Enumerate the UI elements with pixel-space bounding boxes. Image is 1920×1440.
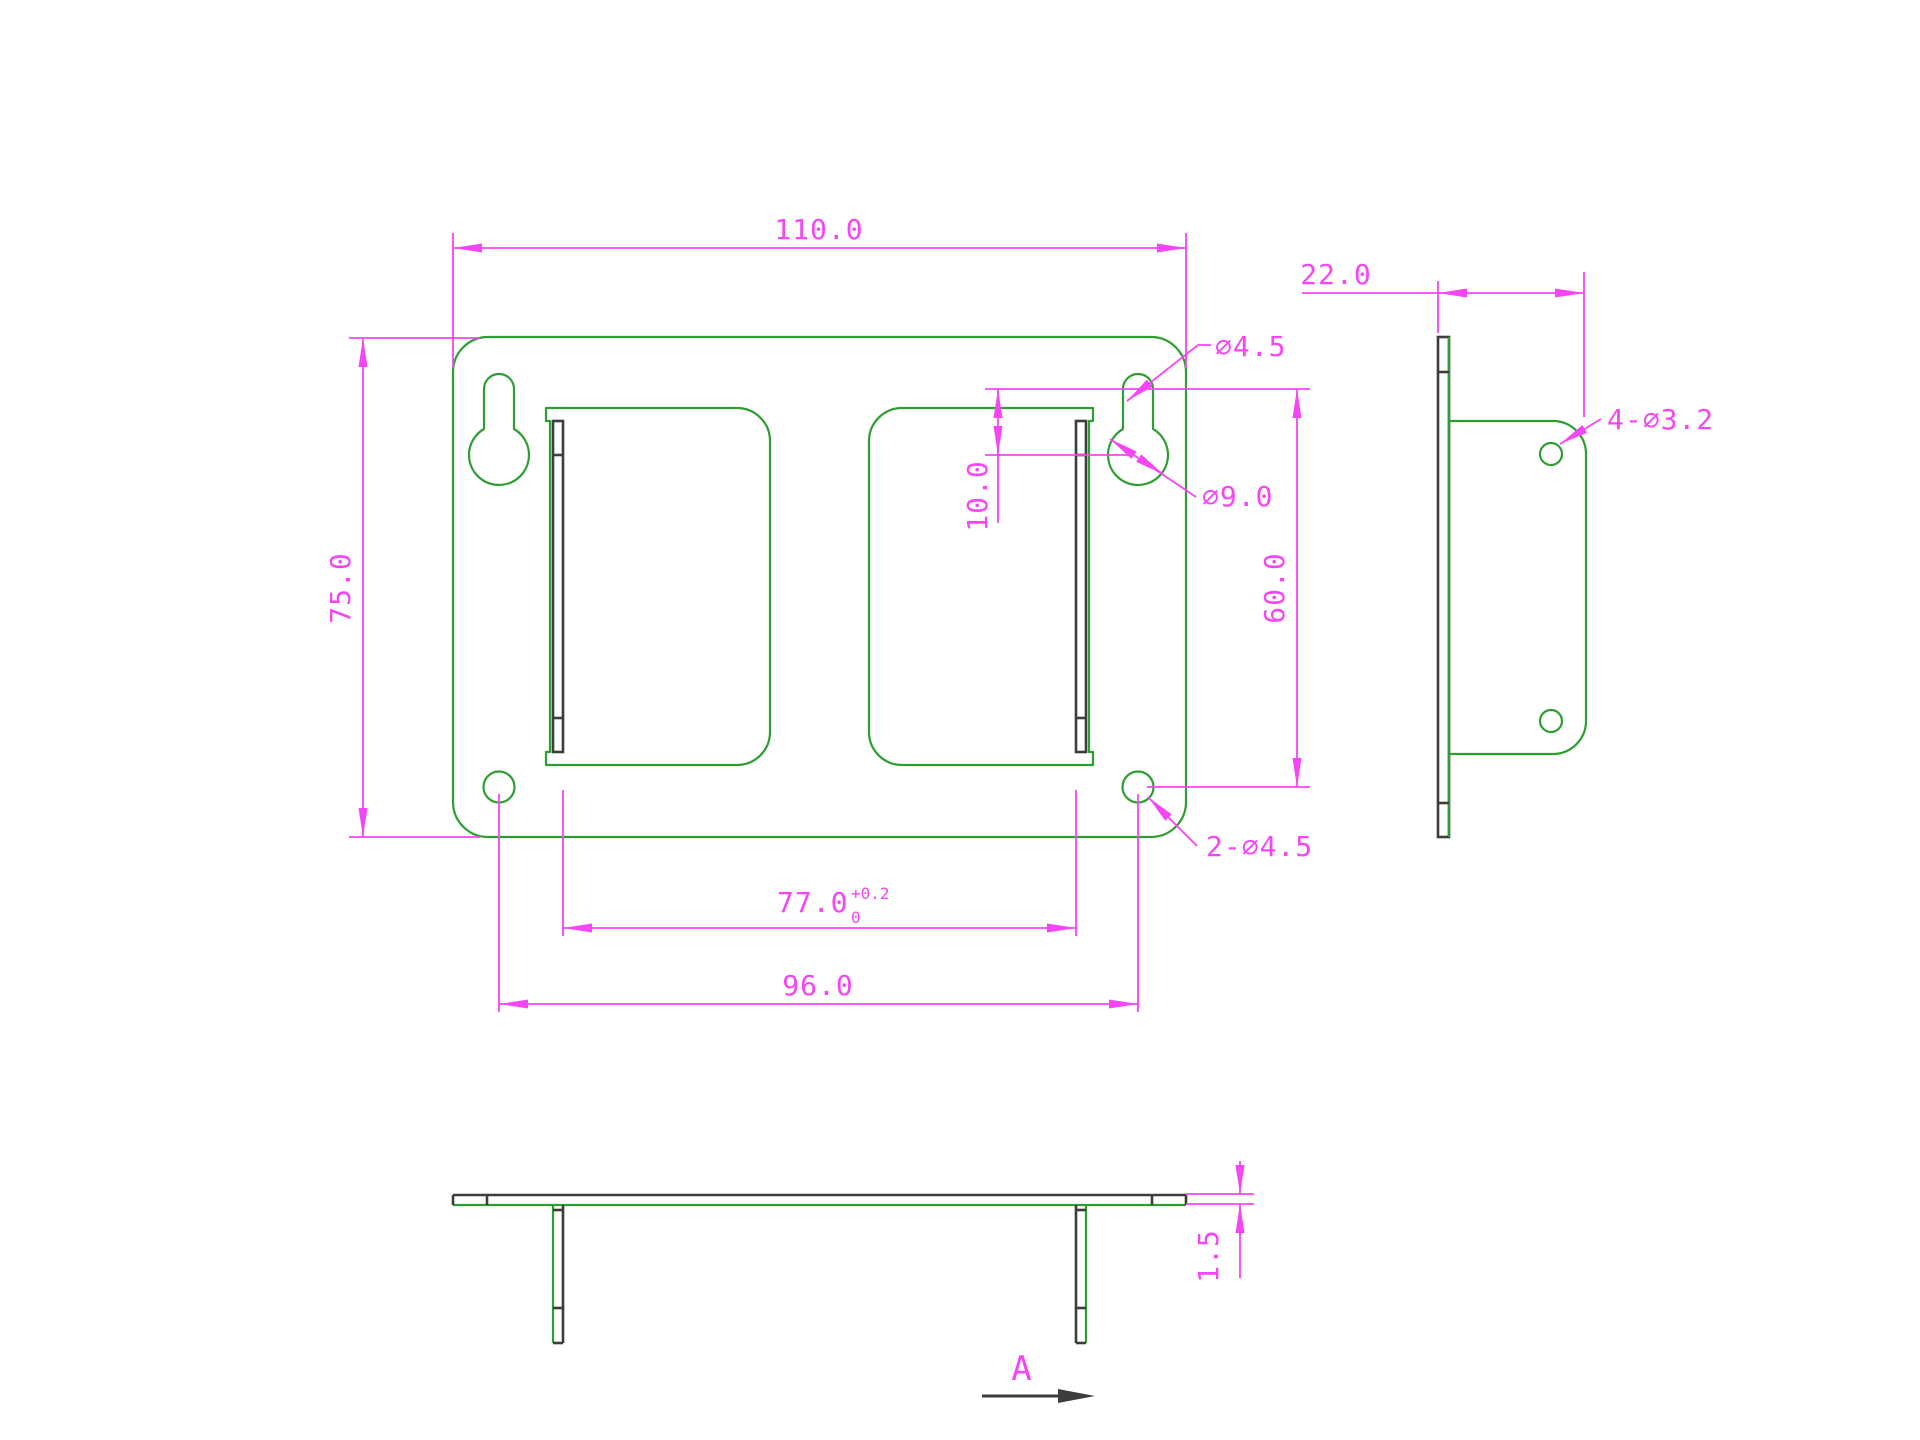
flange-edge-right [1076,421,1086,752]
leader-keyhole-circle: ∅9.0 [1110,439,1273,513]
leg-left [553,1205,563,1343]
dim-flange-gap-tol-upper: +0.2 [851,884,890,903]
leader-keyhole-slot: ∅4.5 [1127,330,1286,401]
flange-hole-bottom [1540,710,1562,732]
front-view [453,337,1186,837]
leader-line [1148,797,1197,846]
plate-edge [1438,337,1449,837]
keyhole-slot-right [1108,374,1168,485]
dim-width-label: 110.0 [774,213,863,246]
dim-thickness: 1.5 [1186,1161,1254,1283]
cutout-left [546,408,770,765]
leg-right [1076,1205,1086,1343]
flange-hole-top [1540,443,1562,465]
section-label: A [1011,1349,1032,1389]
flange-holes-label: 4-∅3.2 [1607,403,1714,436]
bracket-engineering-drawing: 110.0 75.0 10.0 60.0 96.0 77.0 +0.2 0 ∅4… [0,0,1920,1440]
dim-keyhole-offset-label: 10.0 [961,460,994,531]
dim-hole-span-label: 96.0 [782,969,853,1002]
bottom-holes-label: 2-∅4.5 [1206,830,1313,863]
dim-flange-gap-tol-lower: 0 [851,908,861,927]
dim-flange-gap-label: 77.0 [777,886,848,919]
keyhole-slot-dia-label: ∅4.5 [1215,330,1286,363]
dim-depth-label: 22.0 [1300,258,1371,291]
bottom-view [453,1195,1186,1343]
keyhole-circle-dia-label: ∅9.0 [1202,480,1273,513]
drawing-sheet: 110.0 75.0 10.0 60.0 96.0 77.0 +0.2 0 ∅4… [0,0,1920,1440]
dim-height-label: 75.0 [324,552,357,623]
dim-keyhole-to-hole-label: 60.0 [1258,552,1291,623]
flange-edge-left [553,421,563,752]
dim-flange-gap: 77.0 +0.2 0 [563,790,1076,936]
section-arrow-icon [1058,1389,1095,1403]
side-view [1438,337,1586,837]
dim-width: 110.0 [453,213,1186,368]
leader-arrow [1140,459,1163,474]
keyhole-slot-left [469,374,529,485]
flange-profile [1449,421,1586,754]
dim-height: 75.0 [324,338,480,837]
dim-keyhole-to-hole: 60.0 [1147,389,1310,787]
dim-thickness-label: 1.5 [1192,1229,1225,1283]
section-indicator: A [982,1349,1095,1403]
